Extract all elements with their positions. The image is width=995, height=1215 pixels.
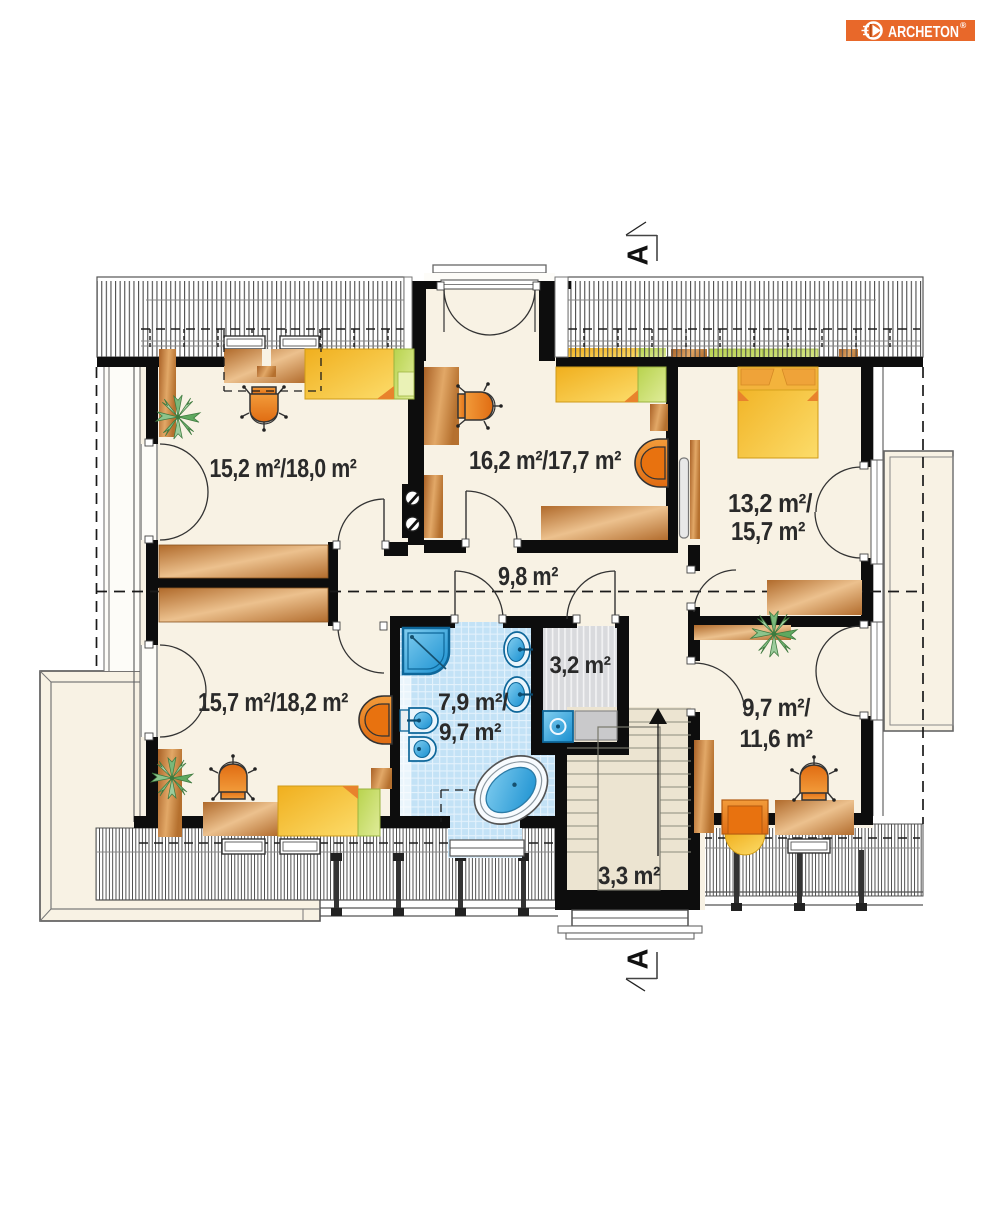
svg-text:A: A <box>623 244 655 265</box>
svg-text:7,9 m²/: 7,9 m²/ <box>438 689 509 716</box>
svg-text:3,2 m²: 3,2 m² <box>550 652 611 679</box>
svg-text:15,7 m²: 15,7 m² <box>731 516 806 546</box>
svg-text:®: ® <box>960 20 967 30</box>
svg-text:9,8 m²: 9,8 m² <box>498 561 559 591</box>
svg-text:15,2 m²/18,0 m²: 15,2 m²/18,0 m² <box>210 453 358 483</box>
svg-text:ARCHETON: ARCHETON <box>888 24 959 41</box>
svg-text:15,7 m²/18,2 m²: 15,7 m²/18,2 m² <box>198 687 349 717</box>
svg-text:9,7 m²: 9,7 m² <box>439 719 501 746</box>
svg-text:13,2 m²/: 13,2 m²/ <box>728 488 812 518</box>
svg-text:A: A <box>623 948 655 969</box>
svg-text:11,6 m²: 11,6 m² <box>740 725 813 753</box>
svg-text:16,2 m²/17,7 m²: 16,2 m²/17,7 m² <box>469 445 622 475</box>
svg-text:3,3 m²: 3,3 m² <box>598 862 660 890</box>
svg-text:9,7 m²/: 9,7 m²/ <box>742 694 810 722</box>
